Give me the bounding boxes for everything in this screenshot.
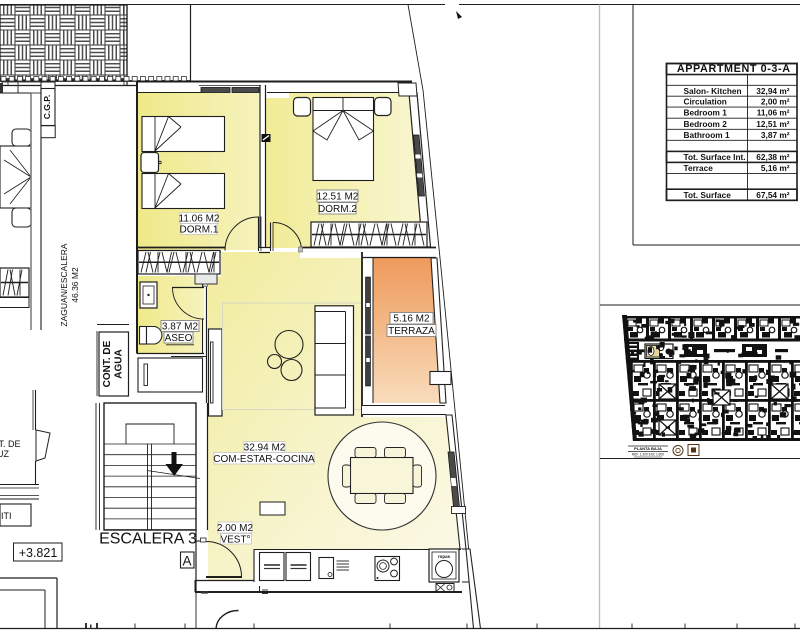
svg-text:APPARTMENT 0-3-A: APPARTMENT 0-3-A <box>677 63 791 75</box>
svg-text:11.06 M2: 11.06 M2 <box>179 214 220 225</box>
svg-text:C.G.P.: C.G.P. <box>42 95 52 119</box>
svg-text:AGUA: AGUA <box>114 349 125 378</box>
svg-text:NT. DE: NT. DE <box>0 439 21 449</box>
svg-text:3.87 M2: 3.87 M2 <box>162 322 199 333</box>
svg-text:ESCALERA 3: ESCALERA 3 <box>99 531 197 548</box>
svg-text:5,16 m²: 5,16 m² <box>761 163 790 173</box>
svg-text:Tot. Surface Int.: Tot. Surface Int. <box>684 152 746 162</box>
svg-text:3,87 m²: 3,87 m² <box>761 130 790 140</box>
svg-text:32.94 M2: 32.94 M2 <box>244 443 286 454</box>
svg-text:Bedroom 1: Bedroom 1 <box>684 108 728 118</box>
svg-text:Tot. Surface: Tot. Surface <box>684 190 732 200</box>
svg-text:12,51 m²: 12,51 m² <box>756 119 789 129</box>
svg-text:COM-ESTAR-COCINA: COM-ESTAR-COCINA <box>213 454 315 465</box>
svg-text:CONT. DE: CONT. DE <box>102 340 113 387</box>
svg-text:A: A <box>182 554 191 569</box>
svg-text:46.36 M2: 46.36 M2 <box>70 267 80 303</box>
svg-text:LUZ: LUZ <box>0 449 10 459</box>
svg-text:11,06 m²: 11,06 m² <box>757 108 790 118</box>
svg-text:Salon- Kitchen: Salon- Kitchen <box>684 86 742 96</box>
svg-text:67,54 m²: 67,54 m² <box>756 190 789 200</box>
svg-text:VEST°: VEST° <box>220 535 250 546</box>
svg-text:ropas: ropas <box>438 554 451 559</box>
svg-text:Terrace: Terrace <box>684 163 714 173</box>
svg-text:Bedroom 2: Bedroom 2 <box>684 119 728 129</box>
svg-text:DORM.1: DORM.1 <box>180 225 219 236</box>
svg-text:TERRAZA: TERRAZA <box>388 326 435 337</box>
svg-text:12.51 M2: 12.51 M2 <box>317 192 359 203</box>
svg-text:DORM.2: DORM.2 <box>318 204 357 215</box>
svg-text:Circulation: Circulation <box>684 97 727 107</box>
svg-text:+3.821: +3.821 <box>19 546 58 560</box>
svg-text:32,94 m²: 32,94 m² <box>756 86 789 96</box>
svg-text:REF. 1:200 ESC 1/200: REF. 1:200 ESC 1/200 <box>632 453 664 457</box>
svg-text:5.16 M2: 5.16 M2 <box>393 314 430 325</box>
svg-text:ZAGUAN/ESCALERA: ZAGUAN/ESCALERA <box>59 243 69 326</box>
svg-text:Bathroom 1: Bathroom 1 <box>684 130 730 140</box>
svg-text:2.00 M2: 2.00 M2 <box>217 523 254 534</box>
svg-text:ITI: ITI <box>1 511 12 521</box>
svg-text:ASEO: ASEO <box>165 333 193 344</box>
svg-text:2,00 m²: 2,00 m² <box>761 97 790 107</box>
svg-text:PLANTA BAJA: PLANTA BAJA <box>634 446 662 451</box>
svg-text:62,38 m²: 62,38 m² <box>756 152 789 162</box>
